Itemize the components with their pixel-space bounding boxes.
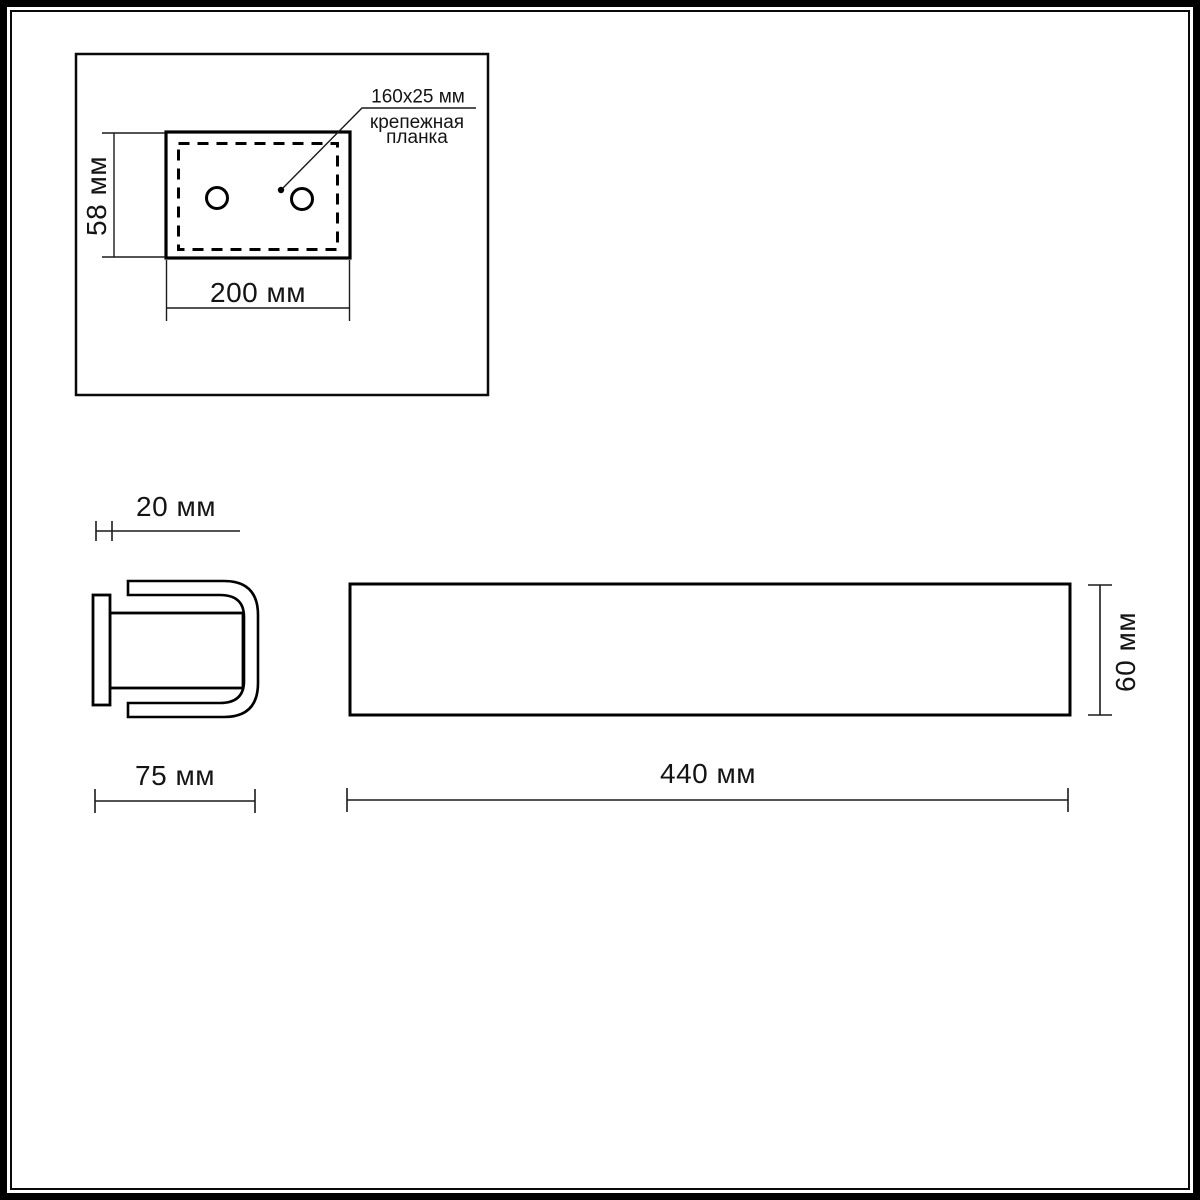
side-profile-wall-plate bbox=[93, 595, 110, 705]
front-view-rect bbox=[350, 584, 1070, 715]
side-view-depth-label: 75 мм bbox=[135, 762, 215, 790]
side-view-plate-thickness-label: 20 мм bbox=[136, 493, 216, 521]
callout-name-label: крепежная планка bbox=[370, 115, 464, 145]
screw-hole-right bbox=[292, 189, 313, 210]
fixture-top-outline bbox=[166, 132, 350, 258]
drawing-sheet: 58 мм 200 мм 160x25 мм крепежная планка … bbox=[0, 0, 1200, 1200]
side-profile-body bbox=[110, 613, 243, 688]
front-view-height-label: 60 мм bbox=[1112, 612, 1140, 692]
front-view-width-label: 440 мм bbox=[660, 760, 756, 788]
top-view-height-dim-label: 58 мм bbox=[83, 156, 111, 236]
top-view-width-dim-label: 200 мм bbox=[210, 279, 306, 307]
callout-size-label: 160x25 мм bbox=[371, 88, 465, 107]
screw-hole-left bbox=[207, 188, 228, 209]
line-art-layer bbox=[0, 0, 1200, 1200]
